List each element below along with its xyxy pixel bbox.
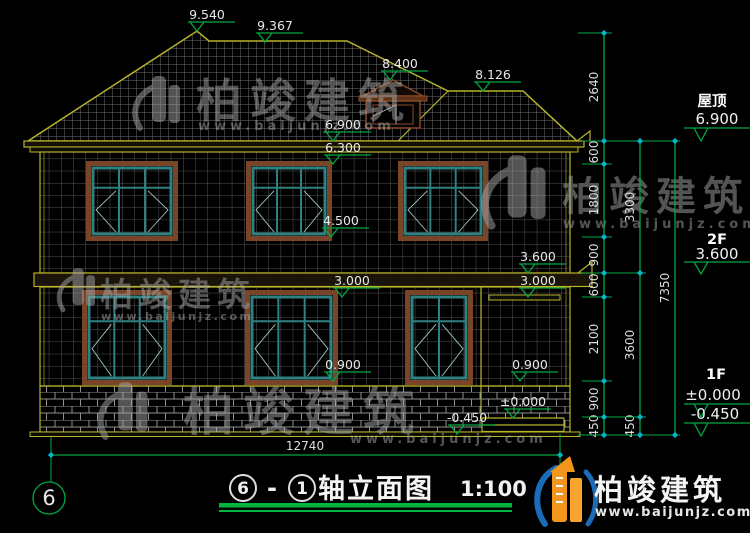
dimension-tick bbox=[601, 234, 607, 240]
logo-tower-2 bbox=[570, 478, 582, 522]
elevation-value: ±0.000 bbox=[500, 394, 546, 409]
elevation-value: -0.450 bbox=[447, 410, 487, 425]
chain-dimension-value: 1800 bbox=[587, 185, 601, 216]
axis-number: 6 bbox=[42, 486, 55, 510]
elevation-value: 9.540 bbox=[189, 7, 225, 22]
total-width-dimension: 12740 bbox=[286, 439, 324, 453]
floor-name: 屋顶 bbox=[698, 93, 727, 110]
dimension-texts: 2640600180090060021009004503300360045073… bbox=[587, 72, 672, 438]
chain-dimension-value: 600 bbox=[587, 141, 601, 164]
floor-level-label: -0.450 bbox=[684, 405, 750, 436]
dimension-tick bbox=[48, 452, 54, 458]
floor-elevation: 6.900 bbox=[696, 110, 739, 128]
chain-dimension-value: 2640 bbox=[587, 72, 601, 103]
chain-dimension-value: 900 bbox=[587, 244, 601, 267]
title-text: 轴立面图 bbox=[318, 473, 434, 505]
watermark-url: www.baijunjz.com bbox=[101, 310, 253, 323]
chain-dimension-value: 900 bbox=[587, 388, 601, 411]
dimension-tick bbox=[601, 138, 607, 144]
dimension-tick bbox=[557, 452, 563, 458]
elevation-value: 6.300 bbox=[325, 140, 361, 155]
dimension-tick bbox=[601, 270, 607, 276]
dimension-tick bbox=[601, 378, 607, 384]
axis-bubble-left: 6 bbox=[33, 482, 65, 514]
chain-dimension-value: 2100 bbox=[587, 324, 601, 355]
floor-elevation: 3.600 bbox=[696, 245, 739, 263]
brand-logo: 柏竣建筑 www.baijunjz.com bbox=[537, 456, 750, 524]
elevation-value: 8.400 bbox=[382, 56, 418, 71]
title-underline-thick bbox=[219, 503, 512, 508]
elevation-value: 9.367 bbox=[257, 18, 293, 33]
watermark-brand: 柏竣建筑 bbox=[100, 275, 256, 314]
title-underline-thin bbox=[219, 510, 512, 512]
dimension-tick bbox=[637, 432, 643, 438]
dimension-tick bbox=[672, 432, 678, 438]
roof-fascia-lower bbox=[30, 147, 578, 152]
chain-dimension-value: 450 bbox=[623, 415, 637, 438]
elevation-marker: 8.126 bbox=[474, 67, 521, 91]
dimension-tick bbox=[637, 138, 643, 144]
watermark-url: www.baijunjz.com bbox=[563, 217, 750, 232]
title-scale: 1:100 bbox=[460, 477, 527, 501]
elevation-marker: 9.540 bbox=[188, 7, 235, 31]
elevation-value: 4.500 bbox=[323, 213, 359, 228]
elevation-drawing-canvas: 柏竣建筑www.baijunjz.com柏竣建筑www.baijunjz.com… bbox=[0, 0, 750, 533]
floor-elevation: ±0.000 bbox=[685, 386, 741, 404]
floor-level-label: 2F3.600 bbox=[684, 232, 750, 274]
roof-fascia-upper bbox=[24, 141, 584, 147]
logo-brand-text: 柏竣建筑 bbox=[594, 473, 726, 507]
chain-dimension-value: 7350 bbox=[658, 273, 672, 304]
drawing-title: 6 - 1 轴立面图 1:100 bbox=[219, 473, 527, 512]
porch-canopy-fascia bbox=[489, 295, 560, 300]
chain-dimension-value: 3600 bbox=[623, 330, 637, 361]
dimension-tick bbox=[601, 294, 607, 300]
logo-roof-tip bbox=[550, 456, 575, 472]
dimension-tick bbox=[601, 432, 607, 438]
elevation-value: 0.900 bbox=[512, 357, 548, 372]
roof-eave-bracket bbox=[577, 131, 590, 141]
dimension-chains bbox=[604, 33, 675, 435]
right-floor-labels: 屋顶6.9002F3.6001F±0.000-0.450 bbox=[684, 93, 750, 436]
title-axis-a: 6 bbox=[237, 479, 249, 499]
dimension-tick bbox=[601, 30, 607, 36]
dimension-tick bbox=[637, 414, 643, 420]
title-separator: - bbox=[267, 474, 277, 502]
elevation-value: 0.900 bbox=[325, 357, 361, 372]
chain-dimension-value: 600 bbox=[587, 274, 601, 297]
dimension-tick bbox=[672, 138, 678, 144]
floor-elevation: -0.450 bbox=[691, 405, 739, 423]
floor-name: 1F bbox=[706, 367, 726, 383]
elevation-value: 8.126 bbox=[475, 67, 511, 82]
elevation-marker: 9.367 bbox=[256, 18, 303, 42]
dimension-tick bbox=[601, 161, 607, 167]
logo-url-text: www.baijunjz.com bbox=[595, 505, 750, 520]
elevation-value: 3.600 bbox=[520, 249, 556, 264]
chain-dimension-value: 450 bbox=[587, 415, 601, 438]
cad-drawing: 柏竣建筑www.baijunjz.com柏竣建筑www.baijunjz.com… bbox=[0, 0, 750, 533]
floor-level-label: 屋顶6.900 bbox=[684, 93, 750, 141]
elevation-value: 3.000 bbox=[520, 273, 556, 288]
elevation-value: 3.000 bbox=[334, 273, 370, 288]
title-axis-b: 1 bbox=[296, 479, 308, 499]
elevation-value: 6.900 bbox=[325, 117, 361, 132]
chain-dimension-value: 3300 bbox=[623, 192, 637, 223]
dimension-tick bbox=[601, 414, 607, 420]
watermark-url: www.baijunjz.com bbox=[350, 432, 547, 447]
dimension-tick bbox=[637, 270, 643, 276]
